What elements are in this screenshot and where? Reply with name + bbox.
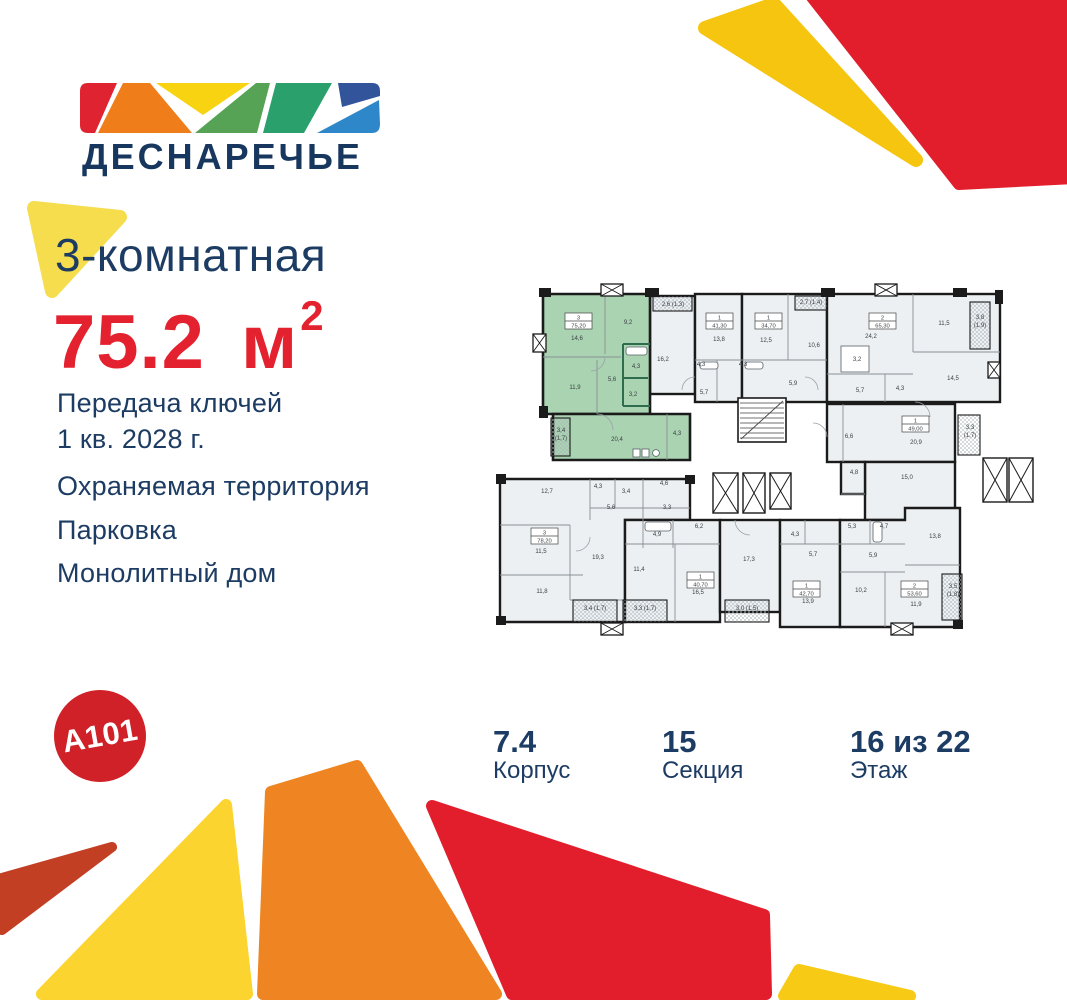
room-area-label: 6,6 [845, 434, 854, 440]
room-area-label: 19,3 [592, 555, 604, 561]
room-area-label: 4,3 [594, 484, 603, 490]
room-area-label: 3,2 [853, 357, 862, 363]
a101-logo-text: A101 [59, 712, 140, 761]
room-area-label: 1 [805, 583, 808, 589]
room-area-label: 10,2 [855, 588, 867, 594]
room-area-label: 1 [718, 315, 721, 321]
room-area-label: 75,20 [571, 324, 586, 330]
room-area-label: 78,20 [537, 539, 552, 545]
room-area-label: 40,70 [693, 583, 708, 589]
room-area-label: 4,3 [673, 431, 682, 437]
logo-wordmark: ДЕСНАРЕЧЬЕ [82, 136, 363, 178]
stat-sekciya-label: Секция [662, 757, 743, 785]
feature-parking: Парковка [57, 515, 177, 546]
stat-korpus-label: Корпус [493, 757, 570, 785]
room-area-label: 24,2 [865, 334, 877, 340]
room-17-3 [720, 520, 780, 612]
floor-plan: 14,69,211,95,64,33,220,44,33,4(1,7)16,22… [495, 282, 1040, 642]
room-area-label: 4,9 [653, 532, 662, 538]
room-area-label: 49,00 [908, 427, 923, 433]
room-area-label: 3,4 [622, 489, 631, 495]
room-area-label: 20,4 [611, 437, 623, 443]
room-area-label: 4,3 [791, 532, 800, 538]
room-area-label: 12,7 [541, 489, 553, 495]
room-area-label: 53,60 [907, 592, 922, 598]
room-area-label: 9,2 [624, 320, 633, 326]
stat-etazh-label: Этаж [850, 757, 907, 785]
room-area-label: 5,6 [608, 377, 617, 383]
room-area-label: 14,5 [947, 376, 959, 382]
room-area-label: 6,2 [695, 524, 704, 530]
room-area-label: (1,7) [964, 433, 976, 439]
room-area-label: 16,5 [692, 590, 704, 596]
room-area-label: 3,3 [663, 505, 672, 511]
room-area-label: 4,3 [896, 386, 905, 392]
room-area-label: 3,8 [976, 315, 985, 321]
stat-sekciya-value: 15 [662, 724, 696, 760]
feature-handover-line2: 1 кв. 2028 г. [57, 424, 205, 455]
room-area-label: (1,7) [555, 436, 567, 442]
room-area-label: 34,70 [761, 324, 776, 330]
room-area-label: 3,2 [629, 392, 638, 398]
logo-shape-teal [263, 83, 332, 133]
room-area-label: 5,7 [809, 552, 818, 558]
room-area-label: 5,6 [607, 505, 616, 511]
room-area-label: 3,4 (1,7) [584, 606, 606, 612]
room-area-label: 3 [577, 315, 580, 321]
listing-type-title: 3-комнатная [55, 228, 326, 282]
logo-banner [80, 83, 380, 133]
room-area-label: 11,9 [910, 602, 922, 608]
room-area-label: 2,7 (1,4) [800, 300, 822, 306]
room-area-label: 5,9 [869, 553, 878, 559]
room-area-label: 1 [914, 418, 917, 424]
room-area-label: 3,4 [557, 428, 566, 434]
room-area-label: 41,30 [712, 324, 727, 330]
room-area-label: 5,7 [856, 388, 865, 394]
room-area-label: 42,70 [799, 592, 814, 598]
room-area-label: 4,7 [880, 524, 889, 530]
area-value: 75.2 [53, 300, 205, 385]
room-area-label: 13,9 [802, 599, 814, 605]
room-area-label: 17,3 [743, 557, 755, 563]
room-area-label: 3,5 [949, 584, 958, 590]
area-unit: м [241, 300, 298, 385]
decorative-triangle-yellow-bottom [42, 805, 247, 994]
decorative-sliver-brick-bottom-left [2, 847, 112, 930]
room-area-label: 20,9 [910, 440, 922, 446]
room-area-label: 4,3 [697, 362, 706, 368]
room-area-label: 11,5 [938, 321, 950, 327]
room-area-label: 1 [767, 315, 770, 321]
room-area-label: 15,0 [901, 475, 913, 481]
room-area-label: 65,30 [875, 324, 890, 330]
staircase [738, 398, 786, 442]
room-area-label: 5,9 [789, 381, 798, 387]
room-area-label: 16,2 [657, 357, 669, 363]
room-area-label: 3,0 (1,5) [736, 606, 758, 612]
room-area-label: 2 [913, 583, 916, 589]
decorative-wedge-yellow-bottom-right [784, 970, 910, 996]
room-area-label: 14,6 [571, 336, 583, 342]
room-area-label: 4,6 [660, 481, 669, 487]
room-4-8 [841, 462, 865, 494]
listing-area: 75.2 м2 [53, 292, 325, 386]
room-area-label: 13,8 [713, 337, 725, 343]
room-area-label: 2 [881, 315, 884, 321]
room-area-label: (1,9) [974, 323, 986, 329]
a101-logo: A101 [54, 690, 146, 782]
unit-42-70 [780, 520, 840, 627]
feature-security: Охраняемая территория [57, 471, 370, 502]
room-area-label: 11,9 [569, 385, 581, 391]
room-area-label: 4,3 [739, 362, 748, 368]
feature-building-type: Монолитный дом [57, 558, 276, 589]
room-area-label: 1 [699, 574, 702, 580]
room-area-label: 11,4 [633, 567, 645, 573]
room-area-label: 13,8 [929, 534, 941, 540]
flyer-page: { "logo": { "name": "ДЕСНАРЕЧЬЕ" }, "dev… [0, 0, 1067, 1000]
stat-etazh-value: 16 из 22 [850, 724, 971, 760]
room-area-label: 3 [543, 530, 546, 536]
unit-49-00 [827, 404, 955, 462]
room-area-label: 3,3 [966, 425, 975, 431]
room-area-label: 11,5 [535, 549, 547, 555]
room-area-label: 2,6 (1,3) [662, 302, 684, 308]
area-sup: 2 [300, 292, 324, 339]
room-area-label: 12,5 [760, 338, 772, 344]
stat-korpus-value: 7.4 [493, 724, 536, 760]
room-area-label: 4,3 [632, 364, 641, 370]
unit-41-30 [695, 294, 742, 402]
room-area-label: 3,3 (1,7) [634, 606, 656, 612]
room-area-label: 4,8 [850, 470, 859, 476]
room-area-label: 11,8 [536, 589, 548, 595]
room-area-label: (1,8) [947, 592, 959, 598]
feature-handover-line1: Передача ключей [57, 388, 282, 419]
room-area-label: 5,7 [700, 390, 709, 396]
room-area-label: 5,3 [848, 524, 857, 530]
room-area-label: 10,6 [808, 343, 820, 349]
